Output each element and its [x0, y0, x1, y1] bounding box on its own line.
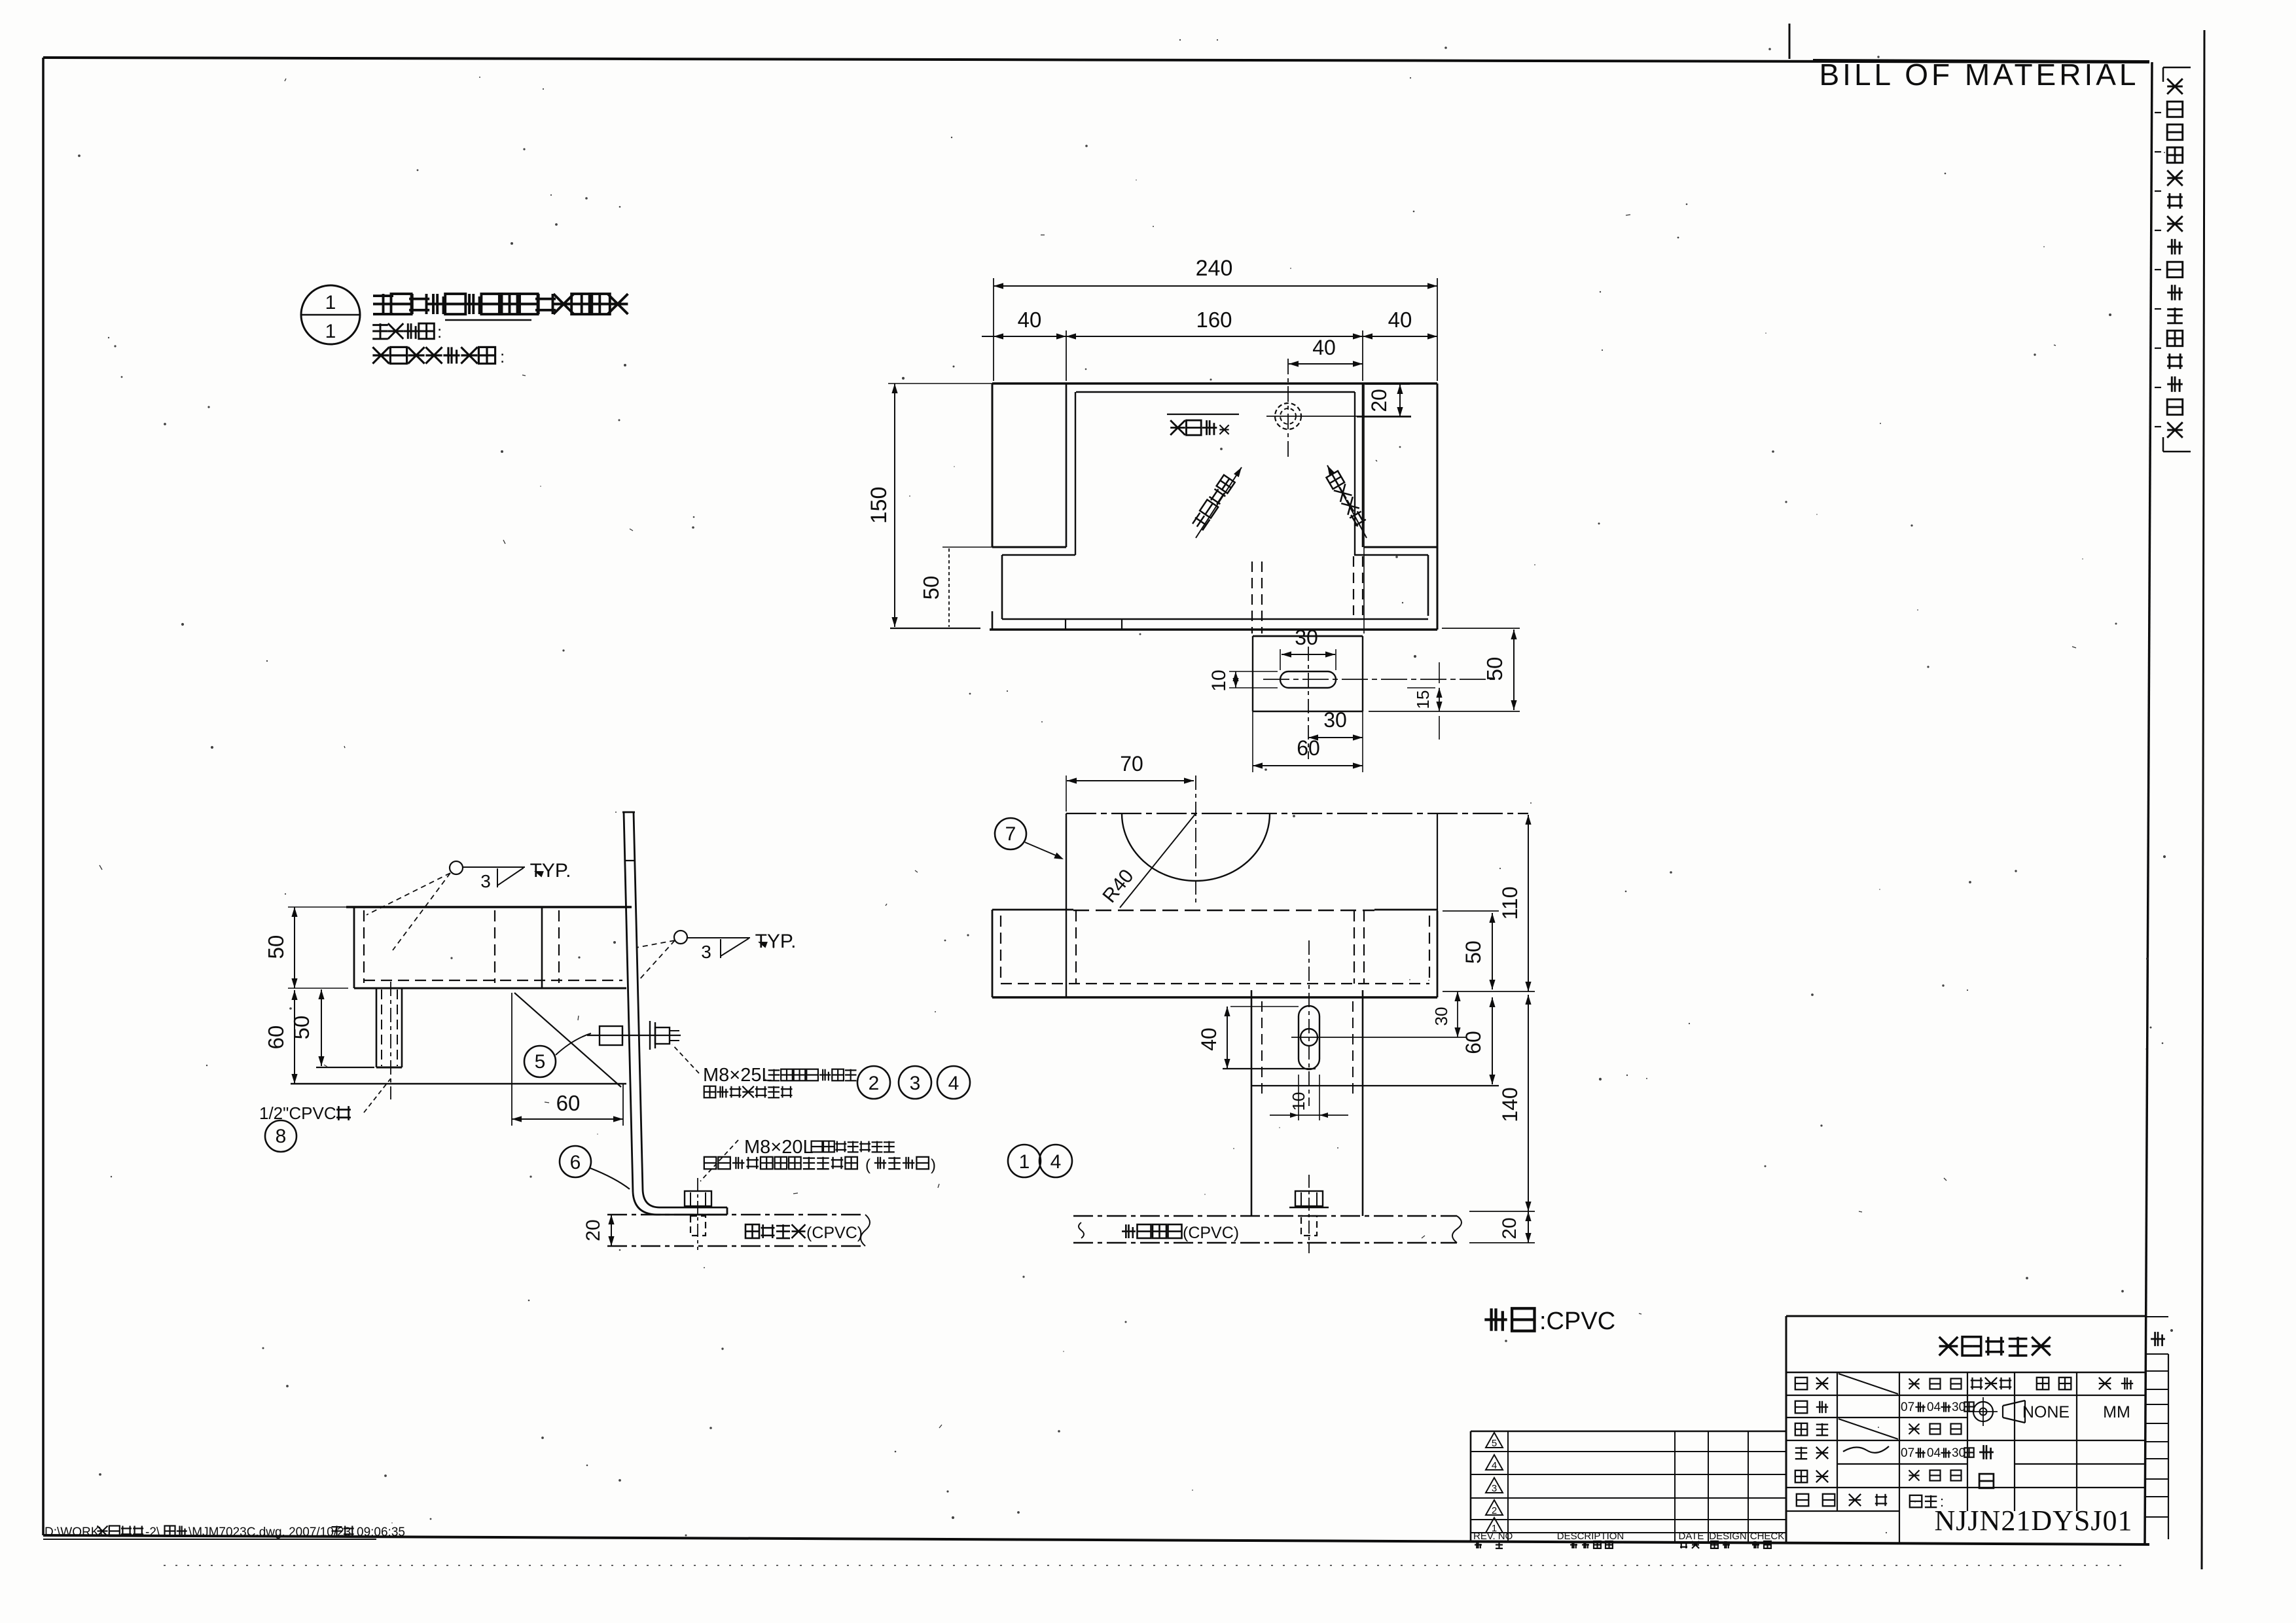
- svg-text:04: 04: [1927, 1446, 1941, 1460]
- svg-text:-2\: -2\: [145, 1525, 160, 1539]
- svg-text:R40: R40: [1098, 865, 1138, 907]
- svg-text:DESCRIPTION: DESCRIPTION: [1557, 1531, 1624, 1542]
- svg-text:4: 4: [948, 1073, 960, 1094]
- svg-text:5: 5: [1492, 1438, 1497, 1449]
- svg-text:6: 6: [570, 1152, 581, 1173]
- svg-text:1: 1: [325, 321, 336, 342]
- svg-text:60: 60: [556, 1091, 581, 1115]
- svg-text:60: 60: [1297, 736, 1320, 760]
- svg-text:5: 5: [535, 1051, 546, 1073]
- svg-text:160: 160: [1196, 308, 1232, 332]
- svg-text:30: 30: [1431, 1007, 1451, 1026]
- svg-text:DESIGN: DESIGN: [1709, 1531, 1747, 1542]
- svg-text:4: 4: [1492, 1460, 1497, 1471]
- svg-text:TYP.: TYP.: [755, 931, 797, 952]
- svg-text:D:\WORK\: D:\WORK\: [45, 1525, 103, 1539]
- svg-text:M8×25L: M8×25L: [703, 1065, 772, 1086]
- svg-text:7: 7: [1005, 823, 1016, 845]
- svg-text:30: 30: [1952, 1400, 1965, 1414]
- svg-text:40: 40: [1018, 308, 1042, 332]
- svg-text:140: 140: [1498, 1087, 1522, 1122]
- svg-text:07: 07: [1901, 1446, 1914, 1460]
- svg-text:30: 30: [1952, 1446, 1965, 1460]
- svg-text:NONE: NONE: [2022, 1403, 2070, 1421]
- svg-text:40: 40: [1388, 308, 1412, 332]
- svg-text:3: 3: [480, 871, 491, 891]
- svg-text:50: 50: [264, 935, 288, 959]
- svg-text:DATE: DATE: [1679, 1531, 1704, 1542]
- svg-text:50: 50: [1482, 657, 1507, 681]
- svg-text:20: 20: [583, 1219, 604, 1241]
- svg-text:20: 20: [1367, 389, 1391, 412]
- svg-text:(CPVC): (CPVC): [1183, 1224, 1239, 1242]
- svg-text:09:06:35: 09:06:35: [357, 1525, 405, 1539]
- svg-text:10: 10: [1208, 669, 1230, 691]
- svg-text:1/2"CPVC: 1/2"CPVC: [259, 1103, 336, 1123]
- svg-text:NJJN21DYSJ01: NJJN21DYSJ01: [1935, 1505, 2133, 1537]
- svg-text:1: 1: [1019, 1151, 1030, 1173]
- svg-text:50: 50: [1462, 940, 1485, 964]
- svg-text:60: 60: [1462, 1031, 1485, 1054]
- svg-text:4: 4: [1050, 1151, 1062, 1173]
- svg-text:2: 2: [869, 1073, 880, 1094]
- svg-text:240: 240: [1196, 256, 1233, 281]
- svg-text:07: 07: [1901, 1400, 1914, 1414]
- svg-text:30: 30: [1323, 708, 1347, 732]
- svg-text:150: 150: [867, 487, 891, 524]
- svg-text:50: 50: [289, 1016, 314, 1040]
- svg-text:REV. NO: REV. NO: [1473, 1531, 1513, 1542]
- svg-text:04: 04: [1927, 1400, 1941, 1414]
- svg-text:2: 2: [1492, 1505, 1497, 1516]
- svg-text:MM: MM: [2103, 1403, 2130, 1421]
- svg-text:1: 1: [325, 292, 336, 313]
- svg-text:40: 40: [1197, 1027, 1221, 1051]
- svg-text:(CPVC): (CPVC): [806, 1224, 863, 1242]
- svg-text:\MJM7023C.dwg, 2007/10/23: \MJM7023C.dwg, 2007/10/23: [188, 1525, 351, 1539]
- svg-text:40: 40: [1312, 336, 1336, 359]
- svg-text::CPVC: :CPVC: [1539, 1308, 1615, 1335]
- svg-text:3: 3: [701, 942, 711, 962]
- svg-text:3: 3: [910, 1073, 921, 1094]
- svg-text:20: 20: [1499, 1217, 1520, 1239]
- svg-text:BILL OF MATERIAL: BILL OF MATERIAL: [1820, 58, 2140, 92]
- svg-text:3: 3: [1492, 1483, 1497, 1494]
- svg-text:110: 110: [1498, 886, 1522, 919]
- svg-text:50: 50: [919, 576, 943, 600]
- svg-text:(: (: [865, 1156, 870, 1174]
- svg-text:M8×20L: M8×20L: [744, 1137, 814, 1158]
- svg-text:8: 8: [276, 1126, 287, 1147]
- svg-text:30: 30: [1295, 626, 1318, 649]
- svg-text:15: 15: [1413, 690, 1433, 709]
- svg-text:CHECK: CHECK: [1750, 1531, 1785, 1542]
- svg-text::: :: [437, 322, 442, 342]
- svg-text:): ): [931, 1156, 936, 1174]
- svg-text:70: 70: [1120, 752, 1143, 776]
- svg-text:TYP.: TYP.: [530, 860, 571, 882]
- svg-text:60: 60: [264, 1026, 288, 1050]
- svg-text::: :: [500, 347, 505, 366]
